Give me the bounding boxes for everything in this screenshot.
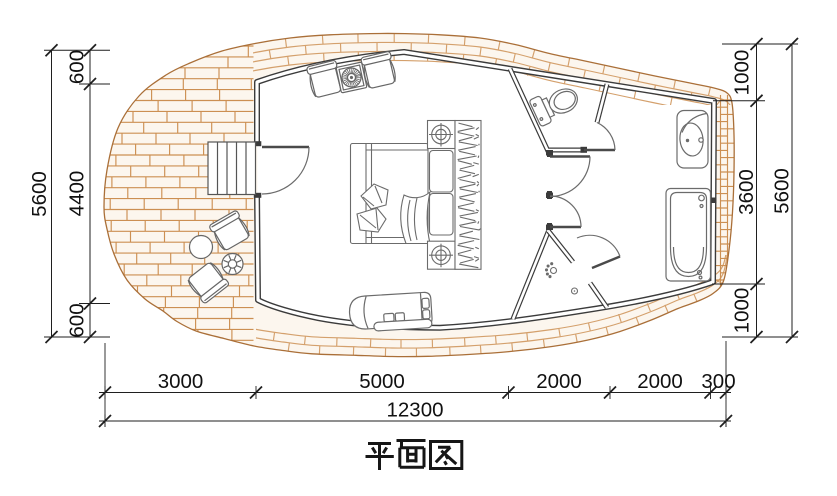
svg-text:4400: 4400 — [66, 171, 89, 217]
svg-text:3000: 3000 — [158, 370, 204, 393]
svg-text:600: 600 — [66, 50, 89, 84]
svg-text:5000: 5000 — [359, 370, 405, 393]
svg-text:1000: 1000 — [731, 288, 754, 334]
svg-text:2000: 2000 — [637, 370, 683, 393]
svg-text:2000: 2000 — [536, 370, 582, 393]
svg-text:3600: 3600 — [735, 169, 758, 215]
svg-text:600: 600 — [66, 303, 89, 337]
svg-text:12300: 12300 — [386, 399, 443, 422]
svg-text:300: 300 — [701, 370, 735, 393]
svg-text:1000: 1000 — [731, 50, 754, 96]
svg-text:5600: 5600 — [771, 168, 794, 214]
svg-text:5600: 5600 — [28, 171, 51, 217]
